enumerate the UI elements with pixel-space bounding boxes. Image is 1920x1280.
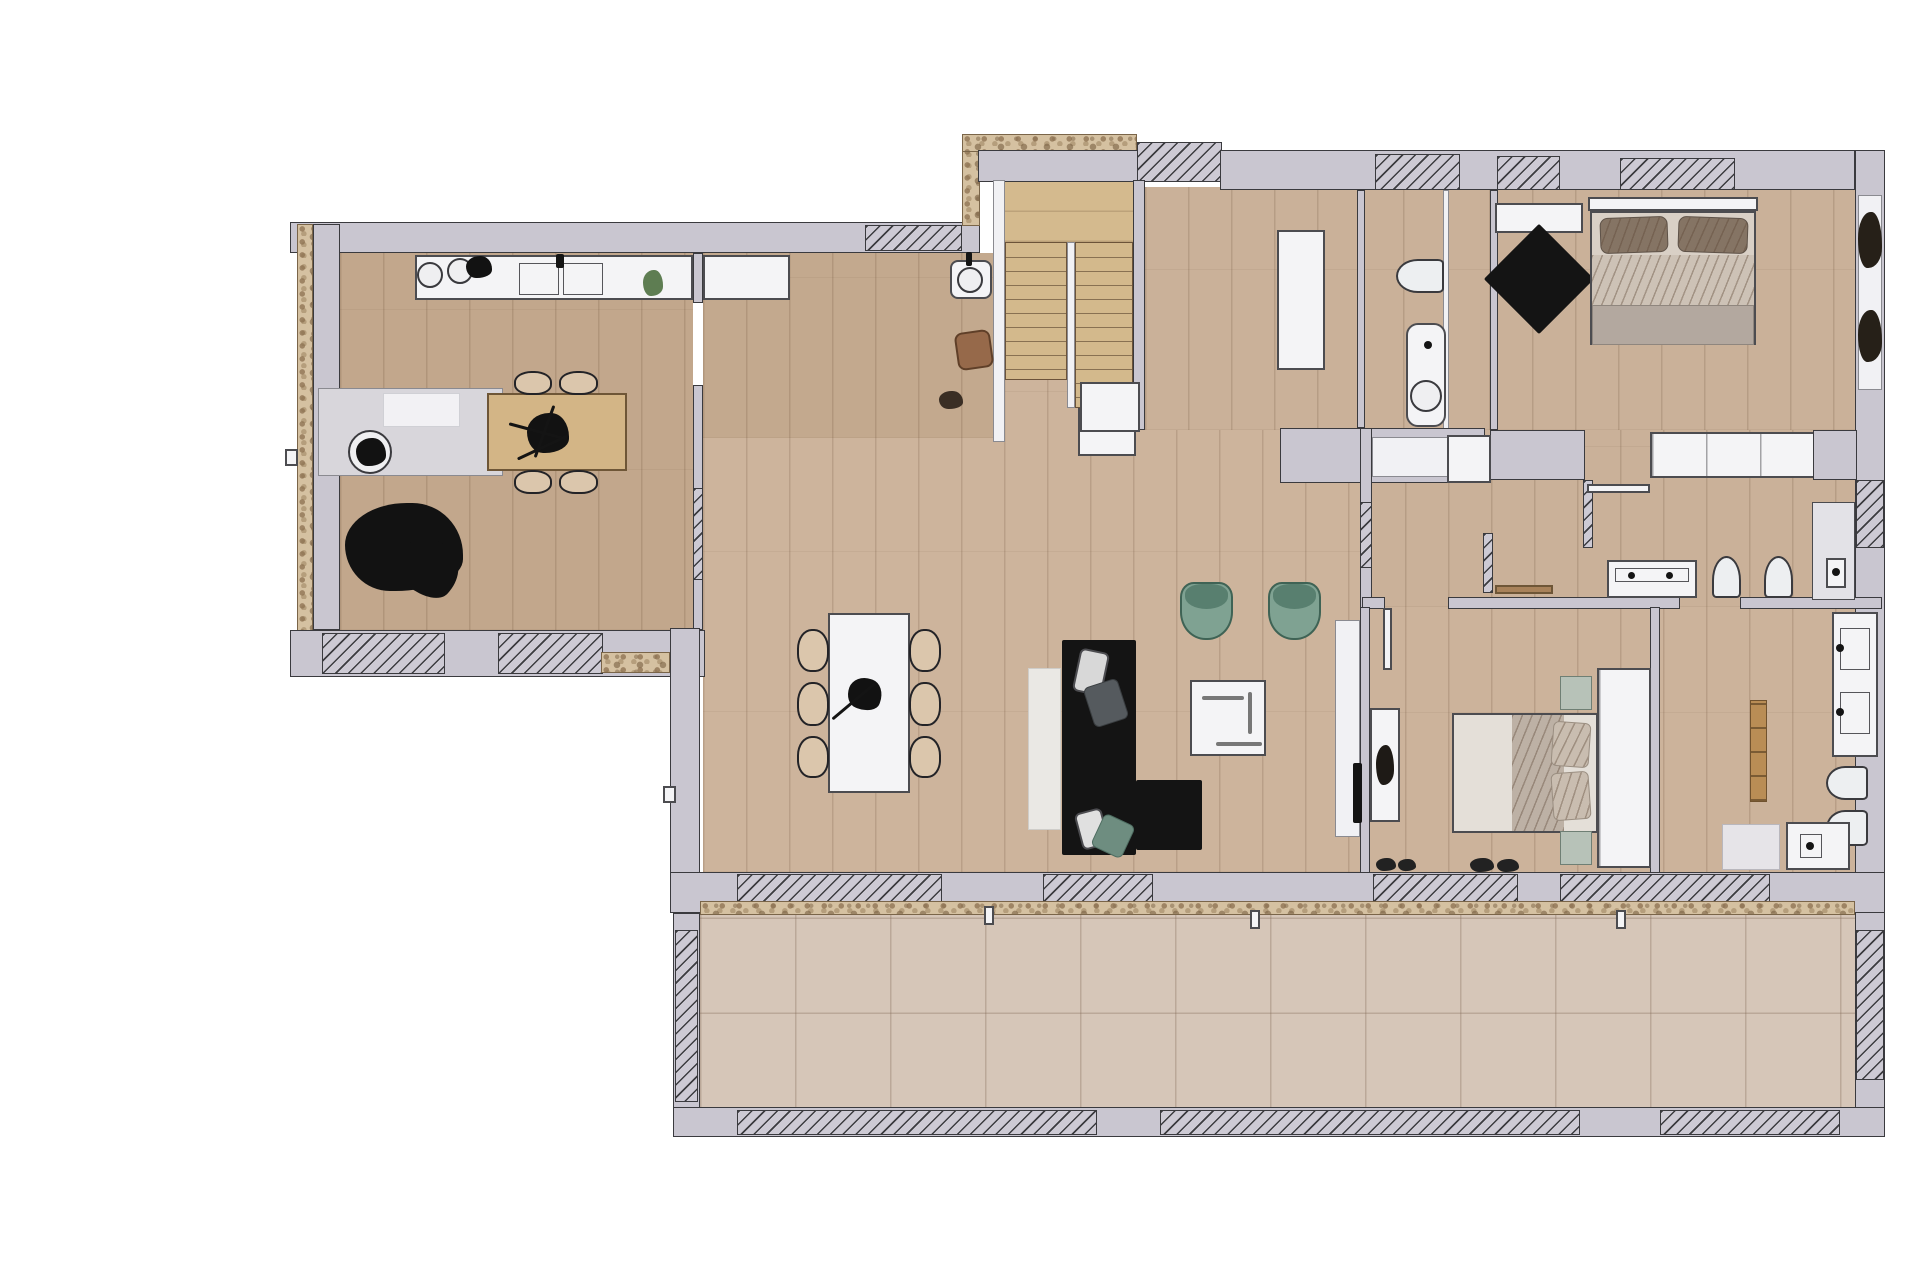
wall-top-center-hatch — [1137, 142, 1222, 182]
bath3-faucet-1 — [1836, 644, 1844, 652]
living-chair-r1 — [909, 629, 941, 672]
bed2-door-leaf — [1383, 608, 1392, 670]
door-handle-living — [663, 786, 676, 803]
stair-tread — [1006, 313, 1066, 314]
bed2-slipper-1 — [1376, 858, 1396, 871]
stair-tread — [1006, 271, 1066, 272]
stair-tread — [1076, 313, 1132, 314]
wc-toilet — [1396, 259, 1444, 293]
master-wardrobe — [1650, 432, 1815, 478]
sofa-rug — [1028, 668, 1061, 830]
wall-top-right-hatch-c — [1620, 158, 1735, 190]
stair-tread — [1076, 327, 1132, 328]
stair-tread — [1076, 257, 1132, 258]
living-chair-r2 — [909, 682, 941, 726]
wall-terrace-bottom-hatch-a — [737, 1110, 1097, 1135]
bed2-pillow-2 — [1550, 771, 1591, 822]
bath2-shower-dot — [1832, 568, 1840, 576]
stair-tread — [1006, 257, 1066, 258]
entry-washbasin-bowl — [957, 267, 983, 293]
stair-tread — [1006, 299, 1066, 300]
bath2-door-leaf — [1587, 484, 1650, 493]
wall-left-stone — [297, 224, 313, 674]
wall-terrace-bottom-hatch-c — [1660, 1110, 1840, 1135]
bath2-toilet — [1764, 556, 1793, 598]
bed2-slipper-3 — [1470, 858, 1494, 872]
bath3-bidet — [1826, 766, 1868, 800]
wall-pass-hatch — [1483, 533, 1493, 593]
living-chair-r3 — [909, 736, 941, 778]
bedroom2-towel-bar — [1495, 585, 1553, 594]
door-handle-kitchen — [285, 449, 298, 466]
wc-faucet — [1424, 341, 1432, 349]
entry-cabinet — [703, 255, 790, 300]
terrace-floor — [700, 913, 1855, 1109]
coffee-table-deco-3 — [1216, 742, 1262, 746]
wall-band-right — [1813, 430, 1857, 480]
kitchen-herb-plant — [643, 270, 663, 296]
kitchen-sink-left — [519, 263, 559, 295]
wall-top-right-hatch-b — [1497, 156, 1560, 190]
stair-flight-left — [1005, 242, 1067, 380]
wc-basin — [1410, 380, 1442, 412]
door-handle-terrace-3 — [1616, 910, 1626, 929]
windowsill-plant-1 — [1858, 212, 1882, 268]
bath2-vanity-basin — [1615, 568, 1689, 582]
wall-bl-hatch-a — [322, 633, 445, 674]
coffee-table-deco-1 — [1202, 696, 1244, 700]
stair-tread — [1006, 285, 1066, 286]
kitchen-chair-4 — [559, 470, 598, 494]
wall-bed2-left — [1360, 607, 1370, 873]
wall-bottom-stone — [700, 901, 1855, 915]
wall-kitchen-right-hatch — [693, 488, 703, 580]
bath2-faucet-2 — [1666, 572, 1673, 579]
wall-top-right-hatch-a — [1375, 154, 1460, 190]
kitchen-sink-right — [563, 263, 603, 295]
floor-plan-canvas — [0, 0, 1920, 1280]
stair-tread — [1006, 341, 1066, 342]
bath3-shower-dot — [1806, 842, 1814, 850]
hall-sideboard — [1080, 382, 1140, 432]
wall-mid-c — [1740, 597, 1882, 609]
door-handle-terrace-2 — [1250, 910, 1260, 929]
kitchen-chair-3 — [514, 470, 552, 494]
wall-kitchen-pier — [693, 253, 703, 303]
wall-top-center — [978, 150, 1140, 182]
bed2-pillow-1 — [1550, 721, 1591, 769]
wall-living-bed2-hatch — [1360, 502, 1372, 568]
stair-tread — [1076, 285, 1132, 286]
wall-terrace-left-hatch — [675, 930, 698, 1102]
door-handle-terrace-1 — [984, 906, 994, 925]
bed2-bench-1 — [1560, 676, 1592, 710]
stair-tread — [1076, 341, 1132, 342]
lounge-chair-1 — [1180, 582, 1233, 640]
entry-shoes — [939, 391, 963, 409]
entry-stool — [954, 329, 995, 372]
master-bed-duvet — [1592, 255, 1754, 305]
bath3-basin-2 — [1840, 692, 1870, 734]
lounge-chair-2 — [1268, 582, 1321, 640]
storage-closet — [1277, 230, 1325, 370]
stair-divider — [1067, 242, 1075, 408]
bath2-bidet — [1712, 556, 1741, 598]
wall-bl-stone — [601, 652, 670, 673]
bed2-bench-2 — [1560, 831, 1592, 865]
stair-landing — [1005, 180, 1133, 242]
corridor-cabinet — [1447, 435, 1491, 483]
master-bed-blanket — [1592, 305, 1754, 345]
wall-master-band — [1490, 430, 1585, 480]
bed2-mirror-plant — [1376, 745, 1394, 785]
coffee-table-deco-2 — [1248, 692, 1252, 734]
kitchen-counter-plant — [466, 256, 492, 278]
entry-washbasin-faucet — [966, 252, 972, 266]
wall-living-left — [670, 628, 700, 874]
wall-right-hatch-a — [1856, 480, 1884, 548]
master-bed-pillow-1 — [1599, 216, 1668, 254]
sofa-arm — [1136, 780, 1202, 850]
windowsill-plant-2 — [1858, 310, 1882, 362]
kitchen-faucet — [556, 254, 564, 268]
bed2-tv — [1353, 763, 1362, 823]
wall-bed2-bath3 — [1650, 607, 1660, 873]
wall-right-hatch-b — [1856, 930, 1884, 1080]
stair-tread — [1076, 369, 1132, 370]
living-chair-l1 — [797, 629, 829, 672]
stair-tread — [1006, 369, 1066, 370]
wall-wc-left — [1357, 190, 1365, 428]
bed2-wardrobe — [1597, 668, 1651, 868]
bath3-basin-1 — [1840, 628, 1870, 670]
master-bed-pillow-2 — [1677, 216, 1748, 254]
wall-terrace-bottom-hatch-b — [1160, 1110, 1580, 1135]
master-bed-headboard — [1588, 197, 1758, 211]
bath3-towel-ladder — [1750, 700, 1767, 802]
stair-tread — [1006, 327, 1066, 328]
wall-stairs-left — [993, 180, 1005, 442]
bed2-slipper-4 — [1497, 859, 1519, 872]
bath3-mat — [1722, 824, 1780, 870]
stair-tread — [1076, 299, 1132, 300]
wall-mid-b — [1448, 597, 1680, 609]
kitchen-chair-2 — [559, 371, 598, 395]
stair-tread — [1076, 271, 1132, 272]
wall-bl-hatch-b — [498, 633, 603, 674]
kitchen-stool-1 — [417, 262, 443, 288]
stair-tread — [1006, 355, 1066, 356]
bed2-slipper-2 — [1398, 859, 1416, 871]
kitchen-side-rug — [383, 393, 460, 427]
kitchen-chair-1 — [514, 371, 552, 395]
kitchen-round-table-plant — [356, 438, 386, 466]
bath2-faucet-1 — [1628, 572, 1635, 579]
stair-tread — [1076, 355, 1132, 356]
bath3-faucet-2 — [1836, 708, 1844, 716]
wall-top-left-hatch — [865, 225, 962, 251]
living-chair-l3 — [797, 736, 829, 778]
living-chair-l2 — [797, 682, 829, 726]
